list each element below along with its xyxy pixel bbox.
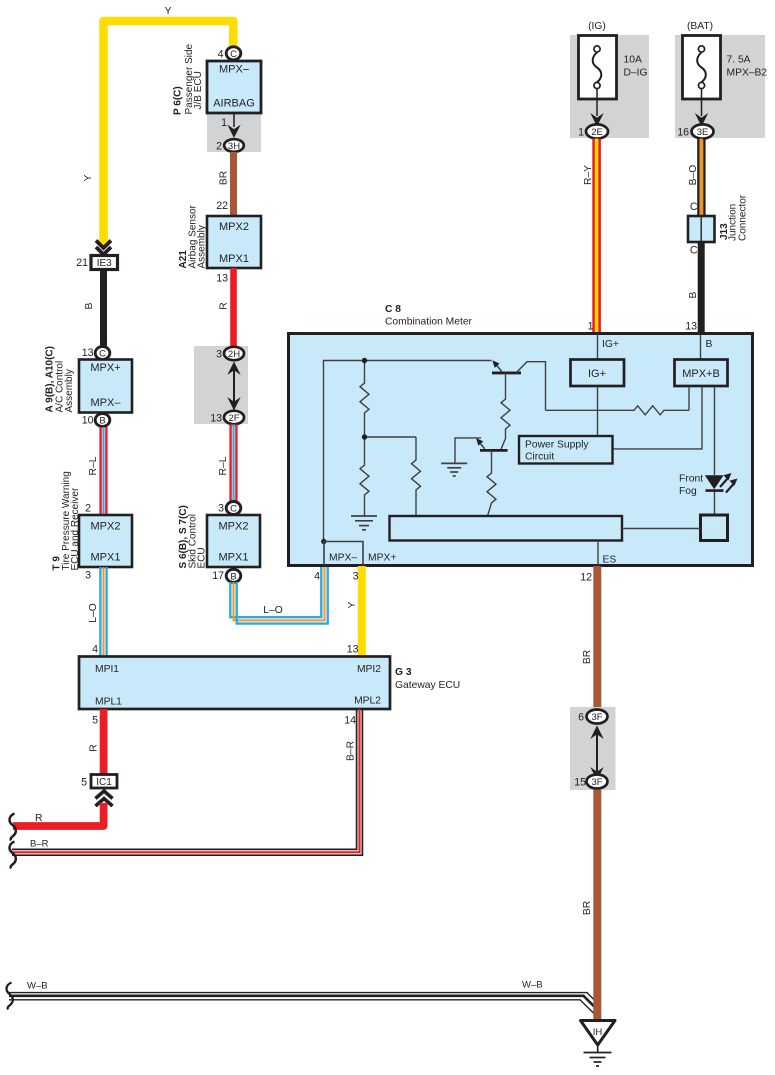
svg-text:MPX2: MPX2: [219, 221, 249, 233]
svg-text:2F: 2F: [228, 413, 239, 424]
svg-text:5: 5: [81, 777, 87, 789]
svg-text:13: 13: [347, 644, 359, 656]
svg-text:Power Supply: Power Supply: [525, 440, 589, 451]
svg-text:16: 16: [677, 127, 689, 139]
svg-text:P 6(C): P 6(C): [173, 86, 184, 115]
svg-text:Gateway ECU: Gateway ECU: [395, 680, 460, 691]
svg-text:R: R: [219, 302, 230, 309]
svg-text:3: 3: [353, 571, 359, 583]
svg-text:2: 2: [216, 141, 222, 153]
svg-text:2: 2: [85, 503, 91, 515]
svg-text:B: B: [99, 416, 105, 427]
svg-text:MPL1: MPL1: [95, 697, 122, 708]
svg-text:3F: 3F: [591, 712, 602, 723]
svg-text:Circuit: Circuit: [525, 452, 554, 463]
svg-text:W–B: W–B: [522, 980, 543, 991]
svg-text:C: C: [230, 504, 237, 515]
svg-text:ECU: ECU: [197, 547, 208, 568]
svg-text:B: B: [706, 339, 713, 350]
svg-text:5: 5: [92, 715, 98, 727]
svg-text:7. 5A: 7. 5A: [727, 55, 751, 66]
svg-text:C: C: [690, 201, 698, 213]
svg-text:R: R: [35, 813, 42, 824]
svg-text:12: 12: [580, 572, 592, 584]
svg-text:Assembly: Assembly: [197, 225, 208, 268]
svg-text:MPX1: MPX1: [219, 253, 249, 265]
svg-text:2E: 2E: [591, 127, 603, 138]
svg-text:IG+: IG+: [588, 368, 606, 380]
svg-text:3F: 3F: [591, 777, 602, 788]
svg-text:BR: BR: [582, 650, 593, 664]
svg-text:4: 4: [314, 571, 320, 583]
svg-text:3: 3: [216, 349, 222, 361]
svg-text:MPI2: MPI2: [357, 664, 381, 675]
svg-text:MPX1: MPX1: [91, 552, 121, 564]
svg-text:MPX2: MPX2: [91, 521, 121, 533]
svg-text:1: 1: [588, 321, 594, 333]
svg-text:10A: 10A: [624, 55, 642, 66]
svg-text:4: 4: [218, 49, 224, 61]
svg-text:Assembly: Assembly: [64, 369, 75, 412]
svg-text:2H: 2H: [228, 349, 240, 360]
svg-text:J/B ECU: J/B ECU: [193, 71, 204, 109]
svg-text:R–L: R–L: [88, 456, 99, 475]
svg-text:1: 1: [578, 127, 584, 139]
svg-text:Connector: Connector: [738, 194, 749, 241]
svg-text:14: 14: [344, 715, 356, 727]
svg-text:3E: 3E: [697, 127, 709, 138]
svg-text:MPX+: MPX+: [368, 553, 396, 564]
svg-text:Y: Y: [165, 6, 172, 17]
svg-text:R–L: R–L: [218, 456, 229, 475]
svg-text:MPI1: MPI1: [95, 664, 119, 675]
svg-text:IE3: IE3: [97, 258, 112, 269]
svg-text:Fog: Fog: [679, 486, 697, 497]
svg-text:6: 6: [578, 712, 584, 724]
svg-text:10: 10: [82, 415, 94, 427]
svg-text:MPX+: MPX+: [90, 362, 120, 374]
svg-text:B: B: [230, 571, 236, 582]
svg-text:MPX–: MPX–: [91, 397, 122, 409]
svg-text:13: 13: [216, 273, 228, 285]
svg-text:R–Y: R–Y: [583, 165, 594, 185]
svg-text:MPX–: MPX–: [329, 553, 357, 564]
svg-text:Combination Meter: Combination Meter: [385, 317, 473, 328]
svg-text:4: 4: [92, 644, 98, 656]
svg-text:L–O: L–O: [263, 605, 282, 616]
svg-text:13: 13: [210, 413, 222, 425]
svg-text:IH: IH: [593, 1027, 603, 1038]
svg-text:C: C: [230, 49, 237, 60]
svg-text:21: 21: [76, 257, 88, 269]
svg-text:B: B: [84, 302, 95, 309]
svg-text:Y: Y: [83, 174, 94, 181]
svg-text:BR: BR: [582, 901, 593, 915]
svg-text:IC1: IC1: [96, 777, 112, 788]
svg-text:C 8: C 8: [385, 304, 401, 315]
svg-text:R: R: [89, 744, 100, 751]
svg-text:3: 3: [218, 503, 224, 515]
svg-text:BR: BR: [219, 171, 230, 185]
svg-text:1: 1: [221, 117, 227, 129]
svg-text:15: 15: [574, 777, 586, 789]
svg-text:AIRBAG: AIRBAG: [213, 98, 255, 110]
svg-text:B–O: B–O: [688, 165, 699, 186]
svg-text:(IG): (IG): [588, 21, 606, 32]
svg-text:Y: Y: [347, 601, 358, 608]
svg-text:IG+: IG+: [602, 339, 619, 350]
svg-text:C: C: [690, 245, 698, 257]
svg-text:MPX+B: MPX+B: [682, 368, 720, 380]
svg-text:D–IG: D–IG: [624, 68, 648, 79]
svg-text:22: 22: [216, 200, 228, 212]
svg-text:(BAT): (BAT): [687, 21, 713, 32]
svg-text:MPL2: MPL2: [354, 696, 381, 707]
svg-text:MPX–: MPX–: [219, 64, 250, 76]
svg-text:C: C: [99, 349, 106, 360]
svg-text:17: 17: [212, 570, 224, 582]
svg-text:MPX1: MPX1: [219, 552, 249, 564]
svg-text:G 3: G 3: [395, 667, 412, 678]
svg-text:13: 13: [685, 321, 697, 333]
svg-text:MPX–B2: MPX–B2: [727, 68, 768, 79]
svg-text:W–B: W–B: [27, 981, 48, 992]
svg-text:3H: 3H: [228, 141, 240, 152]
svg-text:ECU and Receiver: ECU and Receiver: [70, 487, 81, 570]
svg-text:B–R: B–R: [346, 741, 357, 761]
svg-text:L–O: L–O: [88, 603, 99, 622]
svg-text:B–R: B–R: [30, 838, 49, 849]
svg-text:ES: ES: [603, 555, 617, 566]
svg-text:3: 3: [85, 570, 91, 582]
svg-text:B: B: [688, 291, 699, 298]
svg-text:13: 13: [82, 347, 94, 359]
svg-text:Front: Front: [679, 474, 703, 485]
svg-text:MPX2: MPX2: [219, 521, 249, 533]
